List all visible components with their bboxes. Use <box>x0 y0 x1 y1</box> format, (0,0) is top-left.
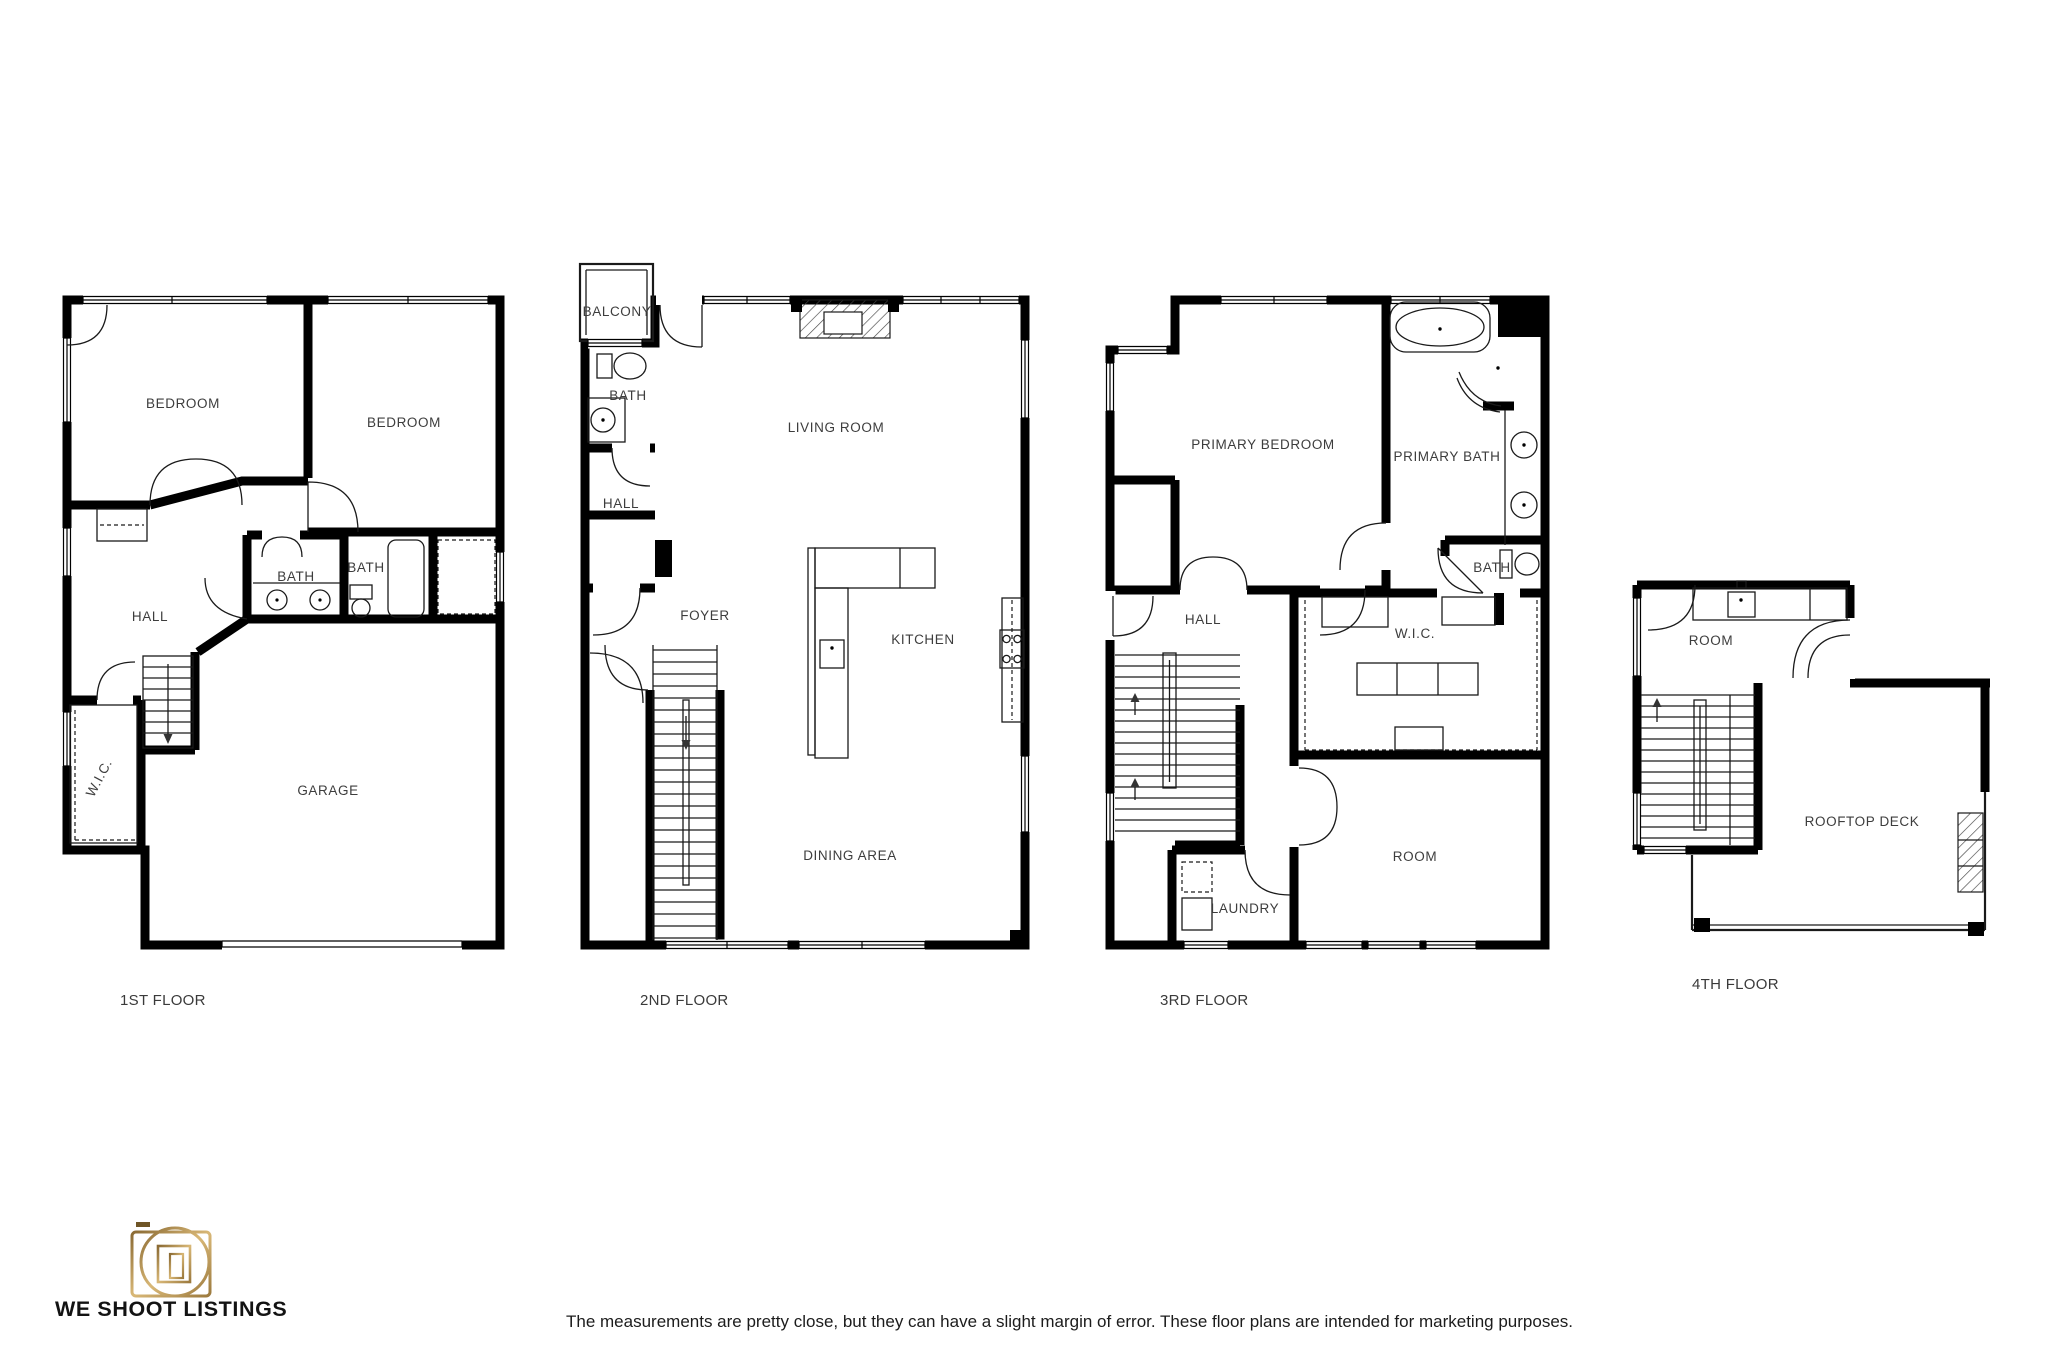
floor2-walls <box>580 264 1025 945</box>
room-label-bath-4: BATH <box>1473 560 1510 575</box>
caption-1st-floor: 1ST FLOOR <box>120 992 206 1009</box>
room-label-balcony: BALCONY <box>583 304 652 319</box>
room-label-bath-1: BATH <box>277 569 314 584</box>
brand-text: WE SHOOT LISTINGS <box>55 1297 287 1322</box>
room-label-room-1: ROOM <box>1393 849 1437 864</box>
room-label-kitchen: KITCHEN <box>891 632 954 647</box>
room-label-primary-bath: PRIMARY BATH <box>1394 449 1501 464</box>
camera-logo-icon <box>120 1212 230 1304</box>
room-label-garage: GARAGE <box>297 783 358 798</box>
floor-plan-sheet: BEDROOM BEDROOM BATH BATH HALL W.I.C. GA… <box>0 0 2048 1362</box>
caption-3rd-floor: 3RD FLOOR <box>1160 992 1249 1009</box>
floor3-walls <box>1110 300 1545 945</box>
planter <box>1958 813 1983 892</box>
room-label-laundry: LAUNDRY <box>1211 901 1279 916</box>
floor-plan-3rd: PRIMARY BEDROOM PRIMARY BATH BATH HALL W… <box>1100 290 1560 1010</box>
room-label-room-2: ROOM <box>1689 633 1733 648</box>
floor-plan-2nd: BALCONY BATH HALL LIVING ROOM FOYER KITC… <box>570 255 1040 1010</box>
room-label-primary-bedroom: PRIMARY BEDROOM <box>1191 437 1335 452</box>
caption-4th-floor: 4TH FLOOR <box>1692 976 1779 993</box>
room-label-bedroom-2: BEDROOM <box>367 415 441 430</box>
room-label-wic-2: W.I.C. <box>1395 626 1435 641</box>
floor-plan-1st: BEDROOM BEDROOM BATH BATH HALL W.I.C. GA… <box>55 290 515 1010</box>
room-label-hall-3: HALL <box>1185 612 1221 627</box>
room-label-hall-1: HALL <box>132 609 168 624</box>
room-label-bath-2: BATH <box>347 560 384 575</box>
room-label-bath-3: BATH <box>609 388 646 403</box>
floor-plan-4th: ROOM ROOFTOP DECK <box>1615 575 2015 995</box>
room-label-dining-area: DINING AREA <box>803 848 897 863</box>
caption-2nd-floor: 2ND FLOOR <box>640 992 729 1009</box>
room-label-living-room: LIVING ROOM <box>788 420 885 435</box>
room-label-bedroom-1: BEDROOM <box>146 396 220 411</box>
room-label-hall-2: HALL <box>603 496 639 511</box>
balcony-railing <box>580 264 653 341</box>
disclaimer-text: The measurements are pretty close, but t… <box>566 1312 1573 1332</box>
room-label-rooftop-deck: ROOFTOP DECK <box>1805 814 1920 829</box>
room-label-foyer: FOYER <box>680 608 730 623</box>
floor2-fireplace <box>791 296 899 338</box>
